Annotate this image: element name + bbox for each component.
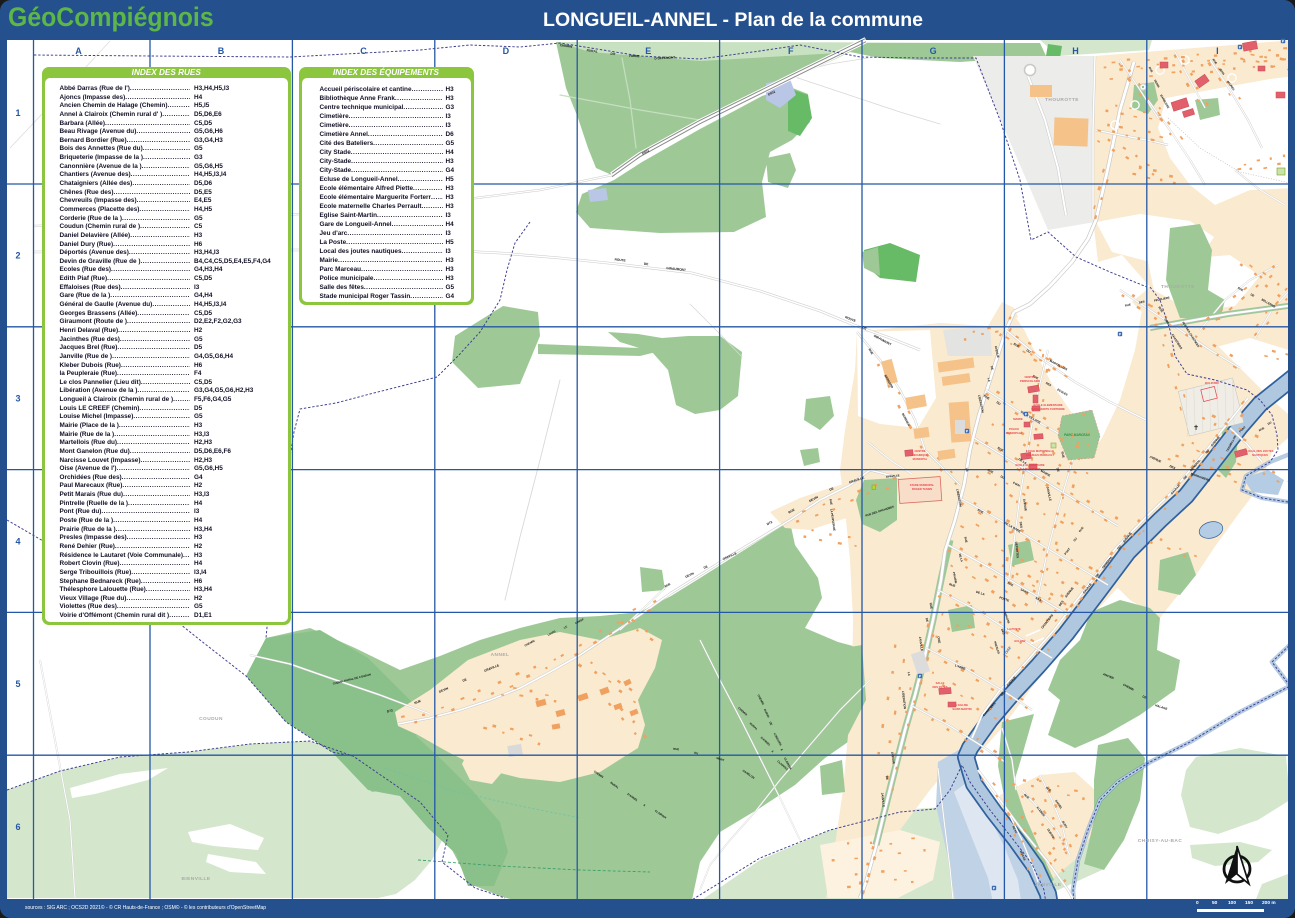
svg-text:BIENVILLE: BIENVILLE xyxy=(181,876,210,882)
svg-text:1: 1 xyxy=(15,108,20,118)
svg-text:JANVILLE: JANVILLE xyxy=(1035,882,1062,888)
svg-text:DE: DE xyxy=(990,365,995,370)
svg-text:CHARLES PERRAULT: CHARLES PERRAULT xyxy=(1026,453,1055,457)
svg-text:LA POSTE: LA POSTE xyxy=(1007,627,1021,631)
svg-text:A: A xyxy=(75,46,82,56)
svg-text:RUE: RUE xyxy=(673,747,679,752)
svg-text:✝: ✝ xyxy=(1193,424,1199,432)
svg-text:COUDUN: COUDUN xyxy=(199,716,223,722)
svg-text:PARC MARCEAU: PARC MARCEAU xyxy=(1064,433,1091,437)
svg-text:MARGUERITE FORTERRE: MARGUERITE FORTERRE xyxy=(1031,407,1065,411)
svg-text:NAUTIQUES: NAUTIQUES xyxy=(1252,453,1268,457)
svg-text:ECOLE ELEMENTAIRE: ECOLE ELEMENTAIRE xyxy=(1015,463,1044,467)
svg-text:DU: DU xyxy=(694,751,699,756)
svg-text:CENTRE: CENTRE xyxy=(1024,375,1035,379)
svg-text:MUNICIPAL: MUNICIPAL xyxy=(913,457,928,461)
svg-text:TECHNIQUE: TECHNIQUE xyxy=(912,453,928,457)
svg-text:CHOISY-AU-BAC: CHOISY-AU-BAC xyxy=(1138,838,1183,844)
svg-text:STADE MUNICIPAL: STADE MUNICIPAL xyxy=(910,483,935,487)
svg-text:H: H xyxy=(1072,46,1079,56)
svg-text:THOUROTTE: THOUROTTE xyxy=(1045,97,1079,103)
svg-text:MAIRIE: MAIRIE xyxy=(1013,417,1023,421)
svg-text:ANNEL: ANNEL xyxy=(491,652,510,658)
svg-text:THOUROTTE: THOUROTTE xyxy=(1161,284,1195,290)
svg-text:DE: DE xyxy=(925,617,930,622)
svg-text:C: C xyxy=(360,46,367,56)
svg-text:4: 4 xyxy=(15,536,20,546)
svg-text:I: I xyxy=(1216,46,1219,56)
svg-text:DE: DE xyxy=(644,262,649,266)
svg-text:SALLE: SALLE xyxy=(936,681,945,685)
svg-text:PERISCOLAIRE: PERISCOLAIRE xyxy=(1020,379,1040,383)
svg-text:VOIRIE: VOIRIE xyxy=(629,54,640,59)
svg-text:3: 3 xyxy=(15,394,20,404)
svg-text:ECOLE ELEMENTAIRE: ECOLE ELEMENTAIRE xyxy=(1033,403,1062,407)
svg-text:ROGER TASSIN: ROGER TASSIN xyxy=(912,487,932,491)
svg-text:E: E xyxy=(645,46,651,56)
svg-text:DIT: DIT xyxy=(610,52,616,56)
svg-text:LOCAL DES JOUTES: LOCAL DES JOUTES xyxy=(1247,449,1274,453)
svg-text:L'EGLISE: L'EGLISE xyxy=(956,703,968,707)
svg-text:CENTRE: CENTRE xyxy=(914,449,925,453)
svg-text:SAINT-MARTIN: SAINT-MARTIN xyxy=(952,707,971,711)
svg-text:5: 5 xyxy=(15,679,20,689)
svg-text:2: 2 xyxy=(15,251,20,261)
svg-text:JEU D'ARC: JEU D'ARC xyxy=(1205,381,1219,385)
svg-text:MUNICIPALE: MUNICIPALE xyxy=(1006,431,1023,435)
svg-text:DES: DES xyxy=(1019,522,1024,529)
svg-text:B: B xyxy=(218,46,225,56)
svg-text:POLICE: POLICE xyxy=(1009,427,1019,431)
svg-text:ECOLE MATERNELLE: ECOLE MATERNELLE xyxy=(1026,449,1054,453)
svg-text:ALFRED PIETTE: ALFRED PIETTE xyxy=(1019,467,1040,471)
svg-text:ECLUSE: ECLUSE xyxy=(1015,639,1026,643)
svg-text:G: G xyxy=(930,46,937,56)
svg-text:D: D xyxy=(503,46,510,56)
svg-text:DES FETES: DES FETES xyxy=(933,685,948,689)
svg-text:DE: DE xyxy=(885,776,890,781)
svg-text:F: F xyxy=(788,46,794,56)
svg-text:6: 6 xyxy=(15,822,20,832)
